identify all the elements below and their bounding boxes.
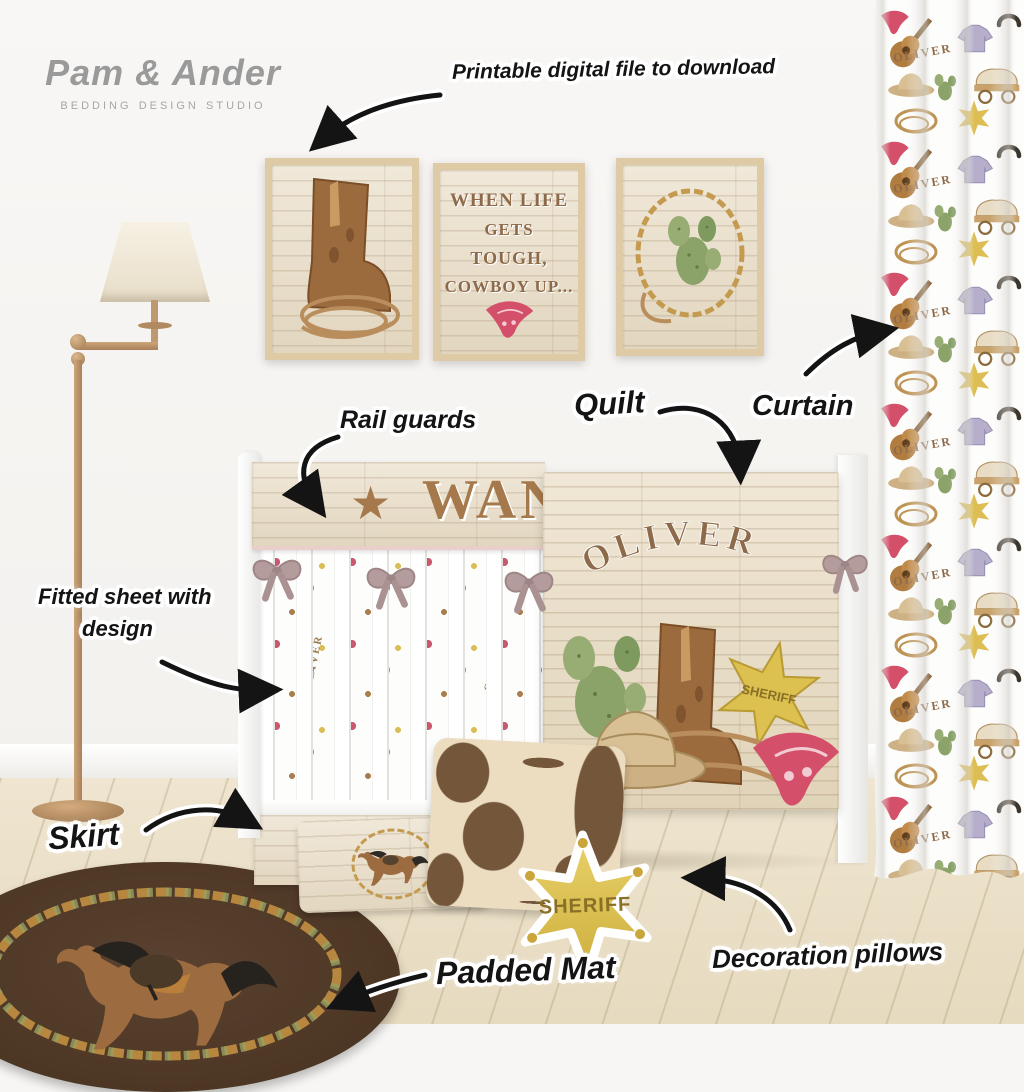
brand-tagline: Bedding design studio xyxy=(38,96,288,113)
bow-icon xyxy=(500,560,558,616)
pillow-badge-text: SHERIFF xyxy=(538,893,631,918)
brand-logo: Pam & Ander Bedding design studio xyxy=(38,52,288,113)
annotation-padded-mat: Padded Mat xyxy=(435,949,616,992)
horse-icon xyxy=(57,942,278,1050)
cowboy-boot-icon xyxy=(272,165,412,353)
lamp-joint-ball xyxy=(70,334,86,350)
wall-art-quote-print: WHEN LIFE GETS TOUGH, COWBOY UP... xyxy=(433,163,585,361)
bow-icon xyxy=(248,548,306,604)
brand-name: Pam & Ander xyxy=(38,52,288,94)
quote-line: TOUGH, xyxy=(440,248,578,269)
wall-art-cactus-print xyxy=(616,158,764,356)
quote-line: COWBOY UP... xyxy=(440,277,578,297)
bandana-icon xyxy=(753,733,839,806)
cactus-icon xyxy=(668,216,721,285)
quote-line: GETS xyxy=(440,220,578,240)
annotation-skirt: Skirt xyxy=(47,816,121,858)
star-icon: ★ xyxy=(350,476,391,530)
bow-icon xyxy=(362,556,420,612)
quote-line: WHEN LIFE xyxy=(440,190,578,212)
quilt-name-arc: OLIVER xyxy=(575,512,764,581)
lamp-candle-cup xyxy=(138,322,172,329)
annotation-quilt: Quilt xyxy=(573,384,645,424)
wall-art-boot-print xyxy=(265,158,419,360)
lamp-arm xyxy=(76,342,158,350)
annotation-fitted-sheet-line2: design xyxy=(82,616,153,642)
horse-icon xyxy=(358,849,430,886)
annotation-curtain: Curtain xyxy=(752,390,854,423)
rail-guard: ★ WANTED xyxy=(252,462,545,550)
annotation-fitted-sheet-line1: Fitted sheet with xyxy=(38,584,212,610)
annotation-rail-guards: Rail guards xyxy=(340,406,476,435)
rail-guard-word: WANTED xyxy=(422,468,545,532)
curtain: OLIVER xyxy=(864,0,1024,884)
bandana-icon xyxy=(479,296,539,348)
